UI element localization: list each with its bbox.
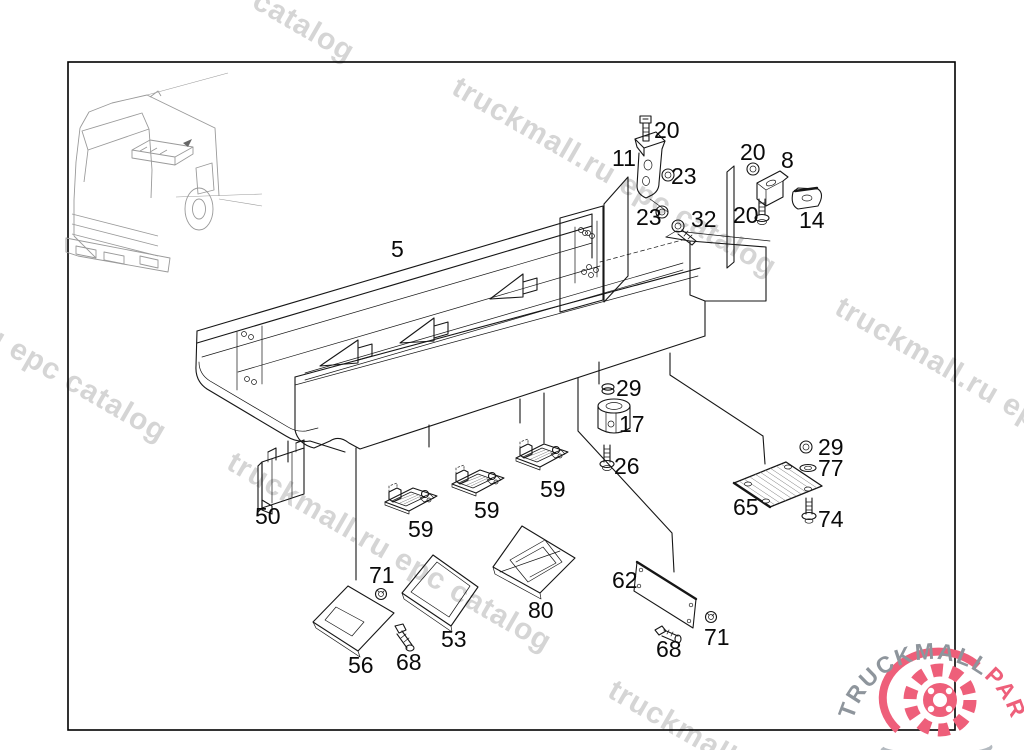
parts-catalog-page: truckmall.ru epc catalogtruckmall.ru epc… [0,0,1024,750]
logo-gear-icon [910,670,970,730]
watermark-text: truckmall.ru epc catalog [447,70,783,283]
part-label-32: 32 [691,206,717,232]
plate-59-drawing-1 [385,483,437,514]
watermark-text: truckmall.ru epc catalog [25,0,361,69]
part-label-layer: 5201123233220820142917262977657450595959… [255,117,844,678]
plate-56-hardware-drawing [313,586,414,657]
part-label-71: 71 [369,562,395,588]
part-label-59: 59 [540,476,566,502]
part-label-20: 20 [733,202,759,228]
part-label-77: 77 [818,455,844,481]
part-label-56: 56 [348,652,374,678]
part-label-65: 65 [733,494,759,520]
part-label-74: 74 [818,506,844,532]
logo-shadow-swoosh [882,746,990,750]
plate-59-drawing-3 [516,439,568,470]
part-label-26: 26 [614,453,640,479]
part-label-8: 8 [781,147,794,173]
part-label-59: 59 [408,516,434,542]
part-label-71: 71 [704,624,730,650]
part-label-17: 17 [619,411,645,437]
part-label-20: 20 [654,117,680,143]
part-label-14: 14 [799,207,825,233]
part-label-11: 11 [612,145,636,171]
cover-80-drawing [493,526,575,599]
watermark-text: truckmall.ru epc catalog [0,235,173,448]
part-label-59: 59 [474,497,500,523]
part-label-50: 50 [255,503,281,529]
part-label-68: 68 [656,636,682,662]
part-label-23: 23 [671,163,697,189]
part-label-62: 62 [612,567,638,593]
plate-59-drawing-2 [452,465,504,496]
part-label-68: 68 [396,649,422,675]
part-label-53: 53 [441,626,467,652]
part-label-23: 23 [636,204,662,230]
watermark-layer: truckmall.ru epc catalogtruckmall.ru epc… [0,0,1024,750]
diagram-canvas: truckmall.ru epc catalogtruckmall.ru epc… [0,0,1024,750]
part-label-80: 80 [528,597,554,623]
part-label-20: 20 [740,139,766,165]
watermark-text: truckmall.ru epc catalog [830,290,1024,503]
truck-cab-sketch [66,73,262,272]
part-label-5: 5 [391,236,404,262]
part-label-29: 29 [616,375,642,401]
